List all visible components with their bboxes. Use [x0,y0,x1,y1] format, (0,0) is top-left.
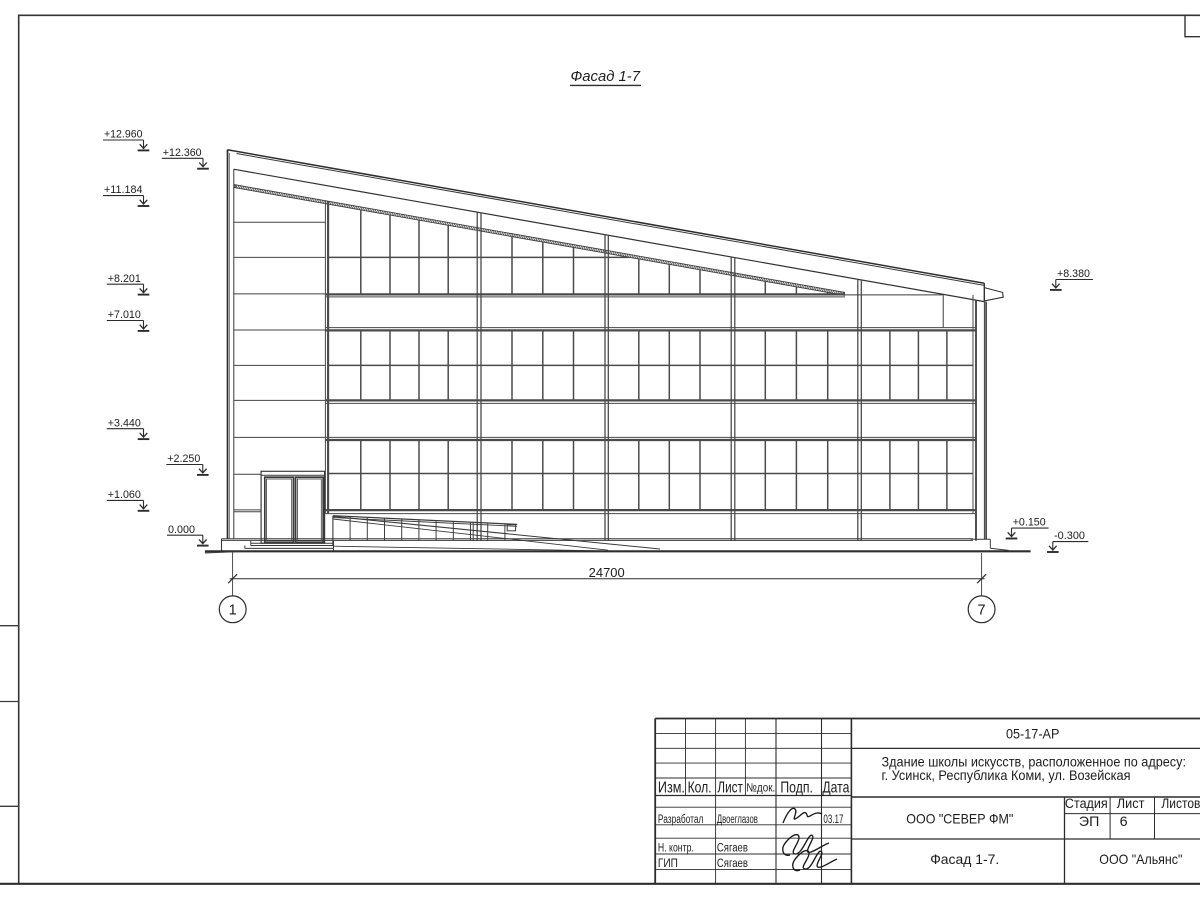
svg-text:Кол.: Кол. [688,780,712,797]
svg-text:05-17-АР: 05-17-АР [1006,727,1059,742]
svg-text:0.000: 0.000 [168,524,195,536]
svg-text:+7.010: +7.010 [108,309,141,321]
svg-text:+0.150: +0.150 [1013,517,1046,529]
svg-text:+3.440: +3.440 [108,417,141,429]
svg-text:ЭП: ЭП [1079,813,1099,829]
svg-text:Двоеглазов: Двоеглазов [717,814,758,826]
svg-text:+8.201: +8.201 [108,273,141,285]
svg-text:ООО "Альянс": ООО "Альянс" [1099,851,1182,867]
svg-text:№док.: №док. [746,781,775,795]
svg-text:Подп.: Подп. [780,780,813,797]
svg-text:+8.380: +8.380 [1057,268,1090,280]
svg-text:Сягаев: Сягаев [717,843,748,855]
svg-text:03.17: 03.17 [823,814,843,826]
svg-text:Изм.: Изм. [658,780,685,797]
svg-text:7: 7 [978,602,986,618]
svg-text:Стадия: Стадия [1065,796,1108,811]
svg-text:Н. контр.: Н. контр. [658,843,694,855]
svg-text:+11.184: +11.184 [104,184,143,196]
svg-text:г. Усинск, Республика Коми, ул: г. Усинск, Республика Коми, ул. Возейска… [882,767,1131,783]
svg-text:Листов: Листов [1161,796,1200,811]
svg-text:+12.360: +12.360 [163,147,202,159]
svg-text:Лист: Лист [717,780,743,797]
svg-text:Фасад 1-7.: Фасад 1-7. [930,851,999,867]
svg-text:+2.250: +2.250 [167,453,200,465]
svg-text:-0.300: -0.300 [1054,530,1085,542]
svg-text:ГИП: ГИП [658,858,678,870]
svg-text:Сягаев: Сягаев [717,858,748,870]
svg-text:Фасад 1-7: Фасад 1-7 [571,68,641,85]
svg-text:1: 1 [229,602,237,618]
svg-text:ООО "СЕВЕР ФМ": ООО "СЕВЕР ФМ" [906,810,1013,826]
svg-text:Разработал: Разработал [658,814,704,826]
svg-text:Лист: Лист [1117,796,1145,811]
svg-text:24700: 24700 [589,566,625,580]
svg-text:Дата: Дата [822,780,849,797]
svg-text:6: 6 [1120,813,1128,829]
svg-text:+12.960: +12.960 [104,129,143,141]
svg-text:+1.060: +1.060 [108,489,141,501]
